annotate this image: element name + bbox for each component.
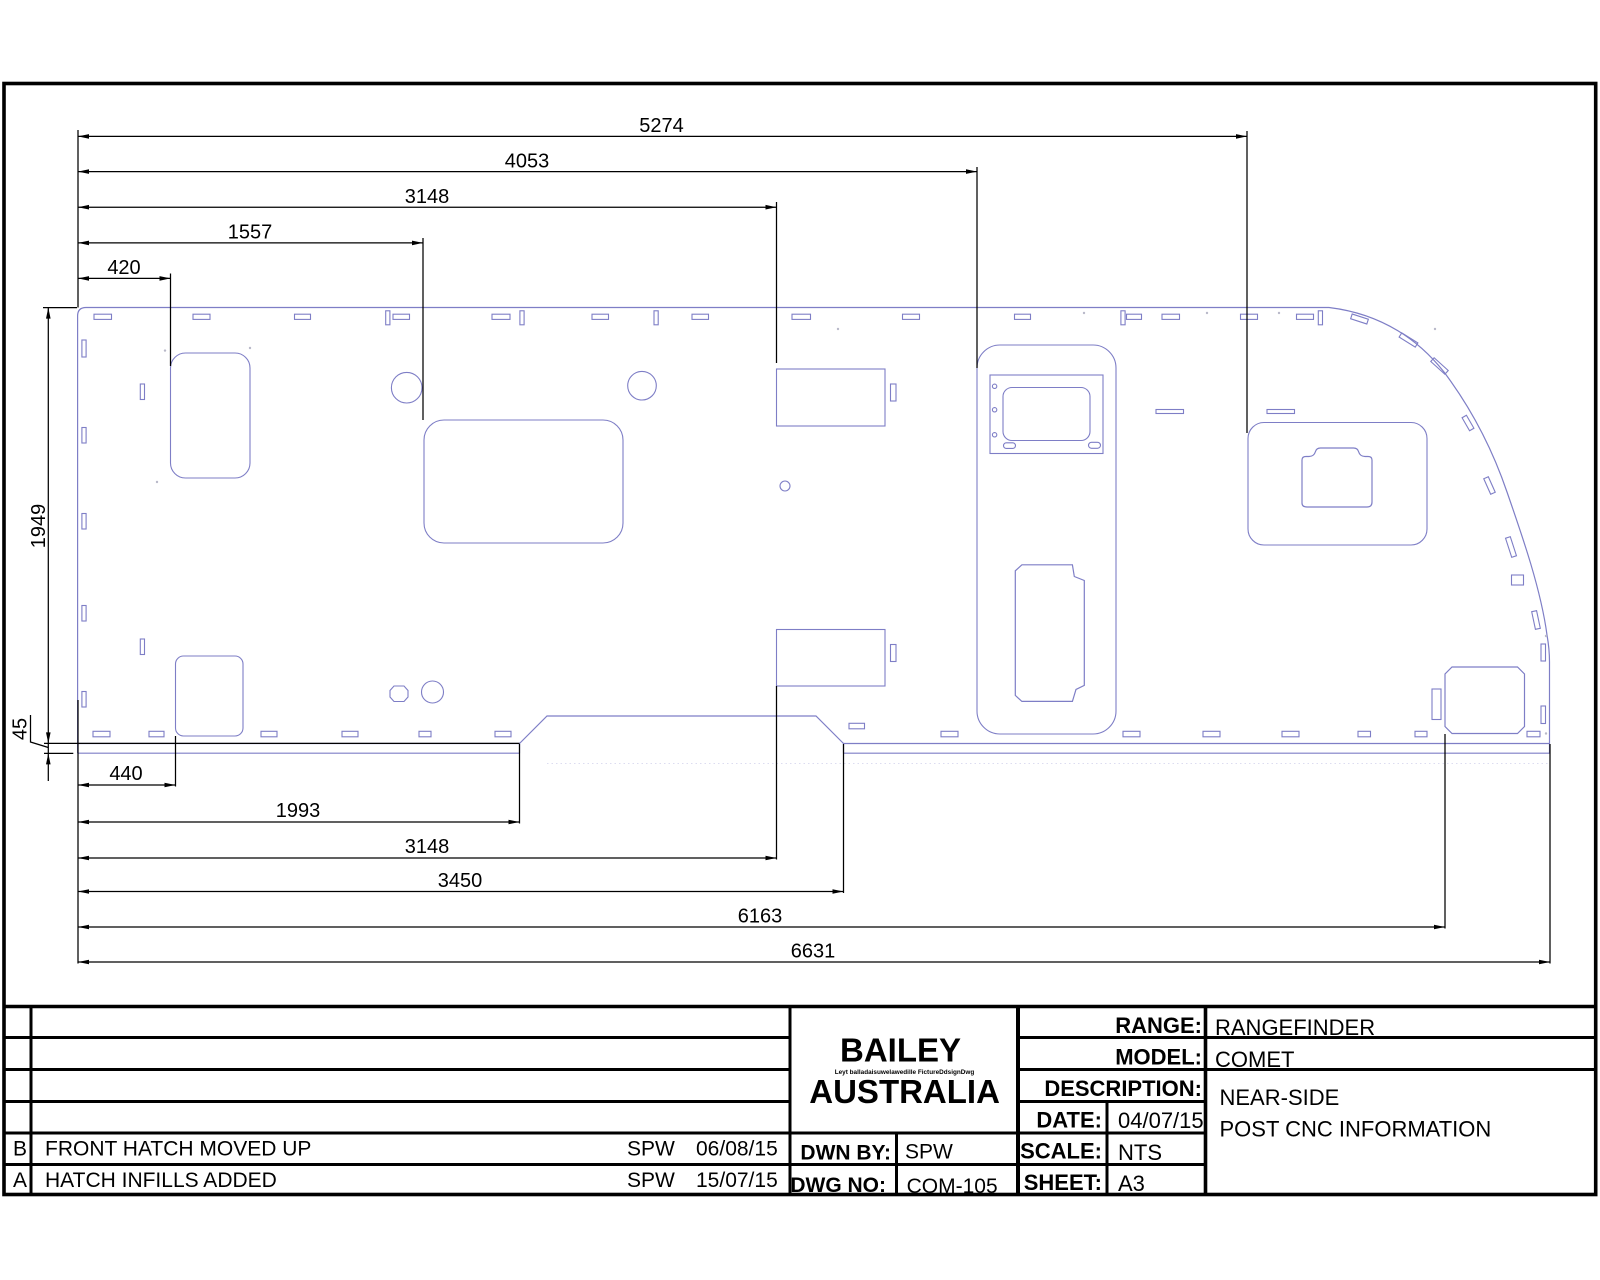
- svg-text:NTS: NTS: [1118, 1140, 1162, 1165]
- svg-text:DWN BY:: DWN BY:: [800, 1141, 891, 1164]
- svg-text:A3: A3: [1118, 1171, 1145, 1196]
- svg-text:SPW: SPW: [905, 1141, 953, 1164]
- svg-text:15/07/15: 15/07/15: [696, 1169, 778, 1192]
- svg-text:NEAR-SIDE: NEAR-SIDE: [1220, 1085, 1340, 1110]
- svg-text:1557: 1557: [228, 221, 273, 243]
- svg-text:DWG NO:: DWG NO:: [790, 1174, 886, 1197]
- svg-text:A: A: [13, 1169, 27, 1192]
- svg-text:04/07/15: 04/07/15: [1118, 1108, 1204, 1133]
- svg-text:440: 440: [109, 763, 142, 785]
- svg-text:45: 45: [10, 718, 32, 740]
- svg-text:SHEET:: SHEET:: [1024, 1170, 1102, 1195]
- svg-text:RANGEFINDER: RANGEFINDER: [1215, 1015, 1375, 1040]
- svg-text:3148: 3148: [405, 836, 450, 858]
- svg-text:3450: 3450: [438, 870, 483, 892]
- svg-text:06/08/15: 06/08/15: [696, 1138, 778, 1161]
- svg-text:HATCH INFILLS ADDED: HATCH INFILLS ADDED: [45, 1169, 277, 1192]
- svg-text:SCALE:: SCALE:: [1020, 1139, 1102, 1164]
- svg-text:B: B: [13, 1138, 27, 1161]
- svg-text:SPW: SPW: [627, 1138, 675, 1161]
- svg-text:6163: 6163: [738, 906, 783, 928]
- svg-text:3148: 3148: [405, 186, 450, 208]
- svg-text:MODEL:: MODEL:: [1115, 1045, 1202, 1070]
- svg-text:5274: 5274: [639, 115, 684, 137]
- svg-text:DESCRIPTION:: DESCRIPTION:: [1044, 1076, 1202, 1101]
- svg-text:420: 420: [107, 257, 140, 279]
- svg-text:1993: 1993: [276, 800, 321, 822]
- svg-text:1949: 1949: [28, 504, 50, 549]
- svg-text:SPW: SPW: [627, 1169, 675, 1192]
- svg-text:BAILEY: BAILEY: [840, 1032, 961, 1069]
- svg-text:FRONT HATCH MOVED UP: FRONT HATCH MOVED UP: [45, 1138, 311, 1161]
- svg-text:4053: 4053: [505, 150, 550, 172]
- svg-text:6631: 6631: [791, 941, 836, 963]
- svg-text:DATE:: DATE:: [1036, 1107, 1102, 1132]
- svg-text:COM-105: COM-105: [907, 1175, 998, 1198]
- svg-text:RANGE:: RANGE:: [1115, 1013, 1202, 1038]
- svg-text:COMET: COMET: [1215, 1047, 1294, 1072]
- svg-text:AUSTRALIA: AUSTRALIA: [809, 1073, 1000, 1110]
- svg-text:POST CNC INFORMATION: POST CNC INFORMATION: [1220, 1117, 1492, 1142]
